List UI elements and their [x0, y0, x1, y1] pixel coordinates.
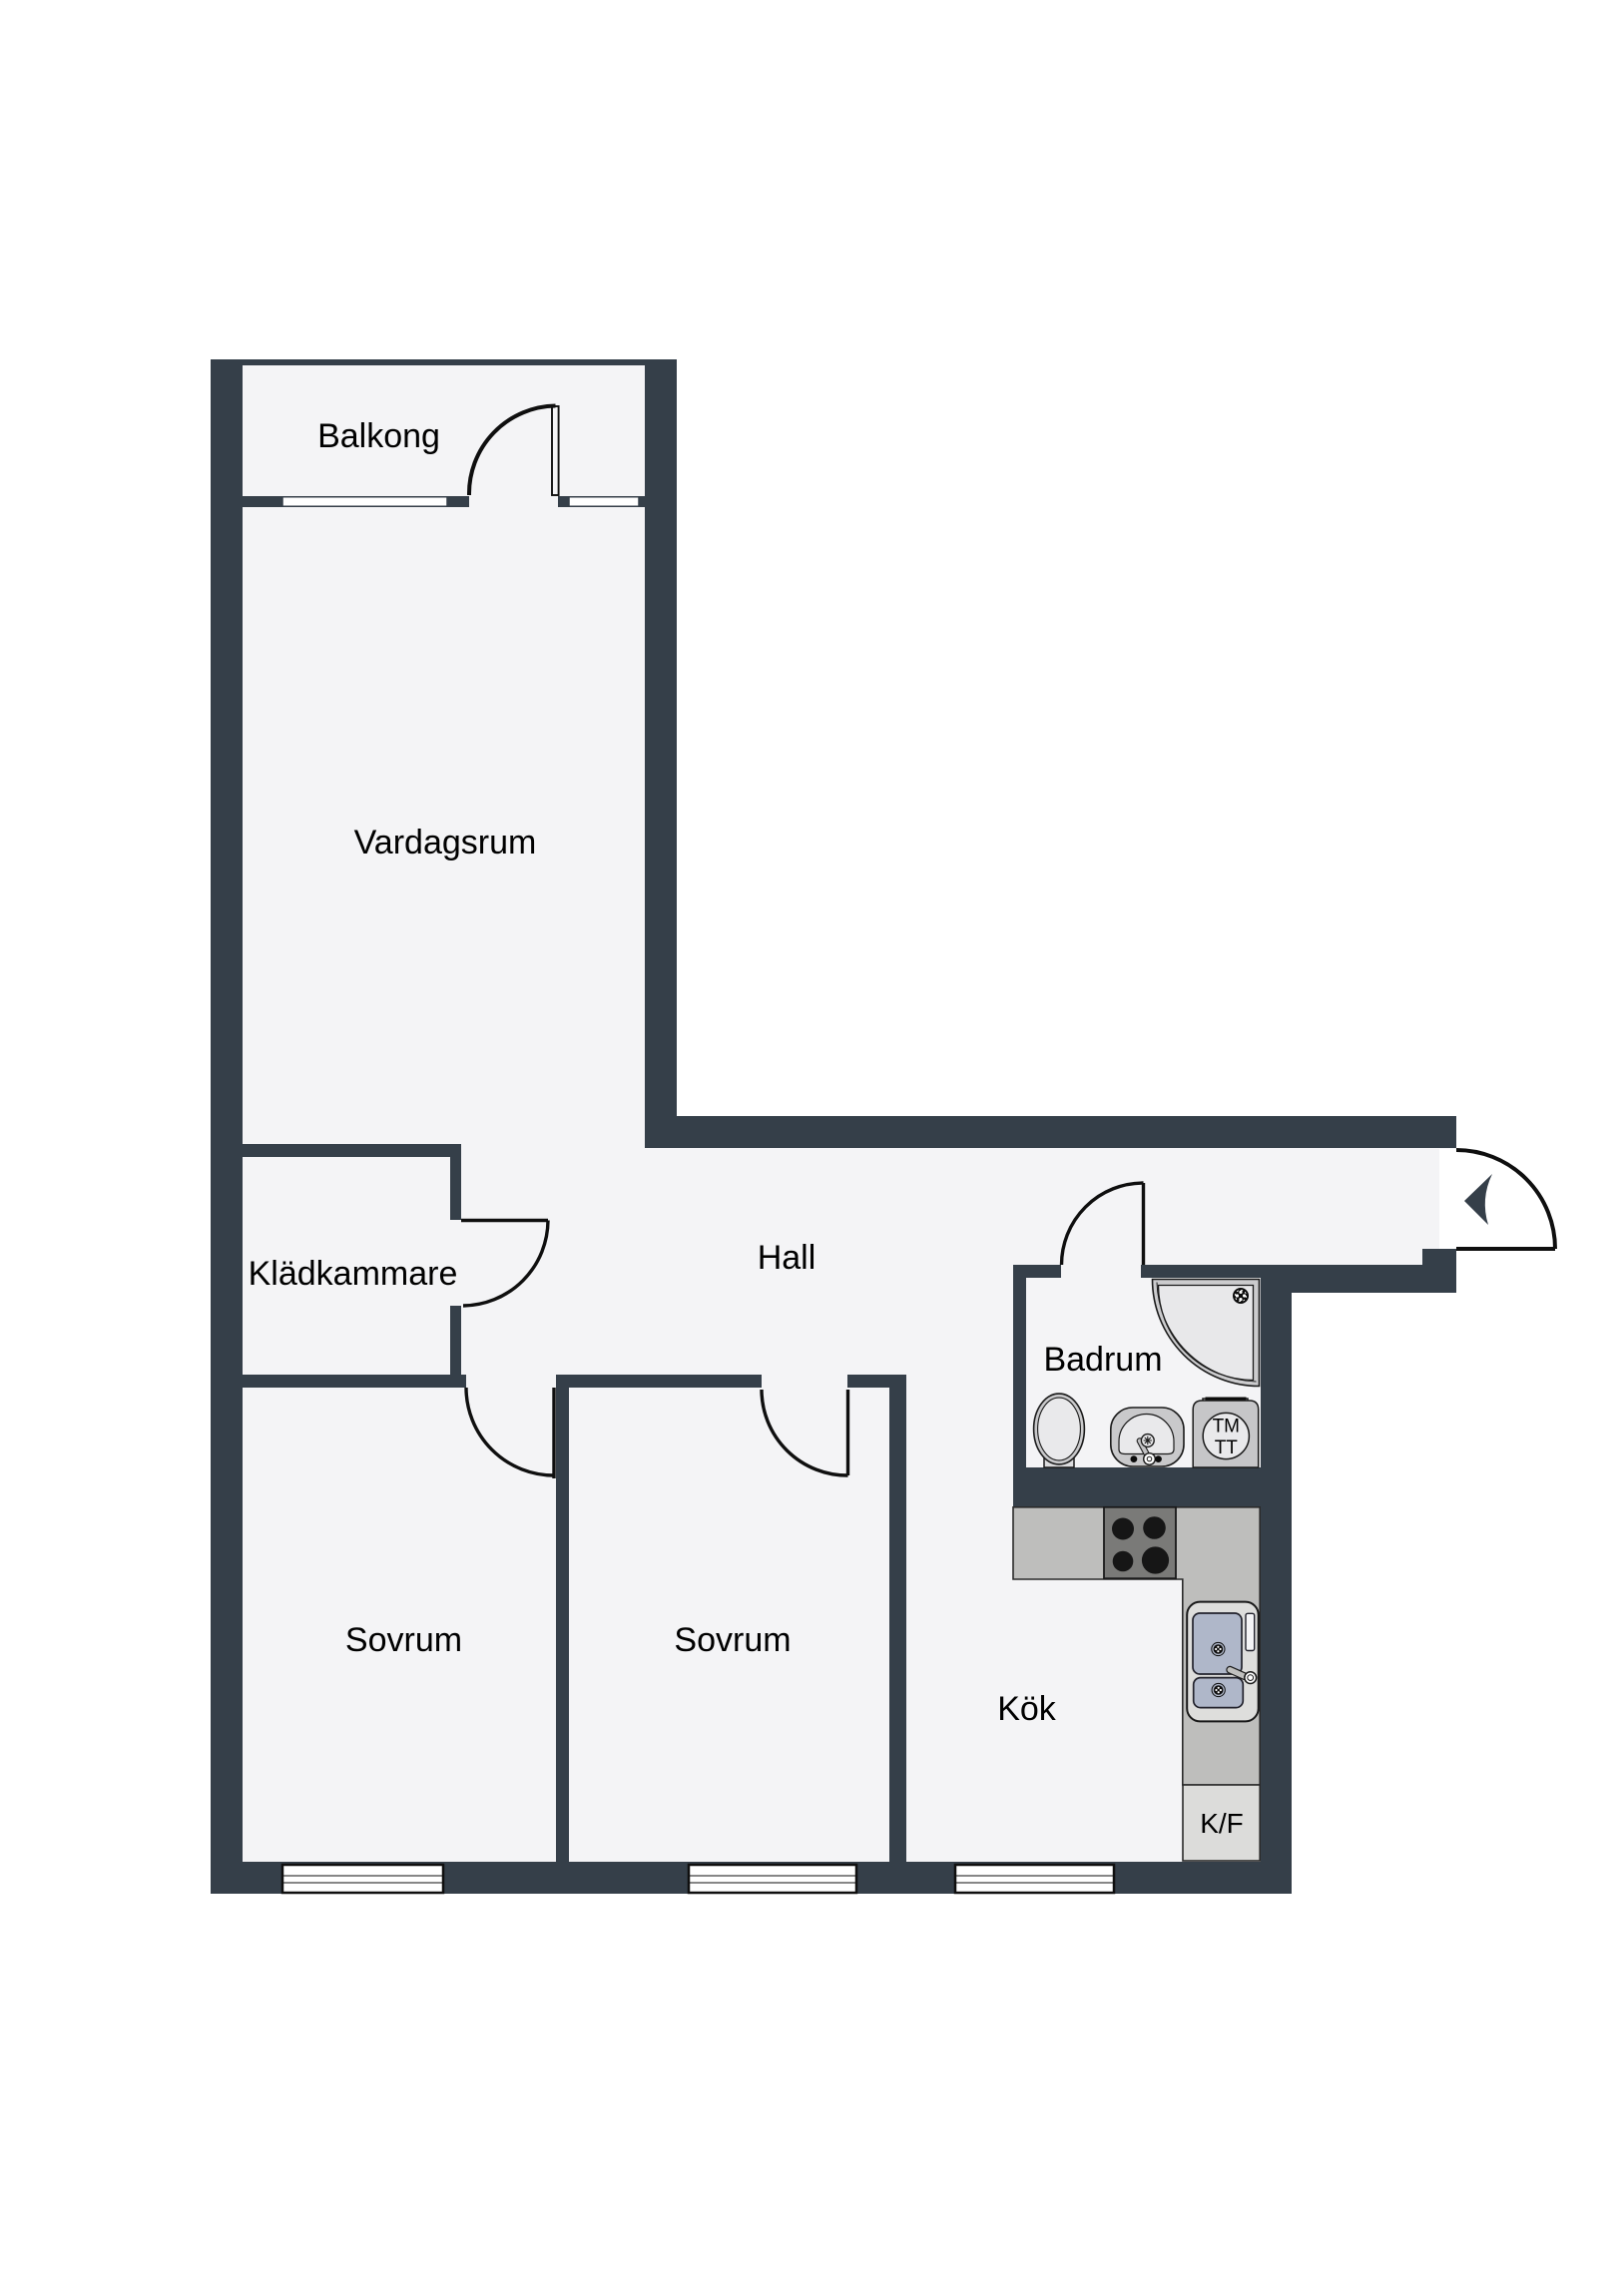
svg-text:Sovrum: Sovrum [345, 1621, 462, 1659]
svg-text:TT: TT [1215, 1437, 1239, 1458]
svg-text:TM: TM [1213, 1417, 1240, 1437]
svg-text:Vardagsrum: Vardagsrum [354, 824, 537, 861]
svg-text:K/F: K/F [1200, 1808, 1244, 1839]
svg-text:Sovrum: Sovrum [674, 1621, 791, 1659]
svg-text:Kök: Kök [997, 1690, 1057, 1728]
svg-text:Hall: Hall [758, 1239, 816, 1277]
svg-text:Badrum: Badrum [1043, 1341, 1162, 1379]
svg-text:Balkong: Balkong [317, 417, 440, 455]
svg-text:Klädkammare: Klädkammare [249, 1255, 458, 1293]
